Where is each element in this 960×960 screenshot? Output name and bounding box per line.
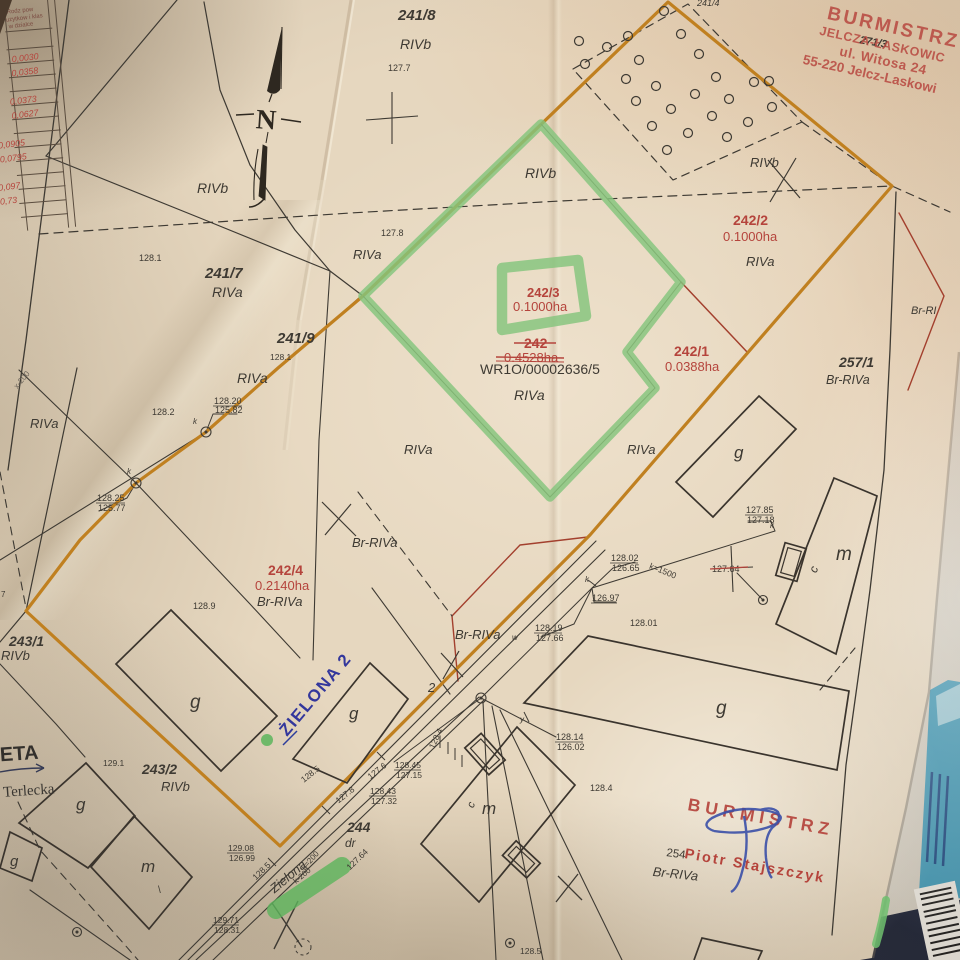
svg-text:128.4: 128.4 bbox=[427, 726, 445, 750]
svg-text:126.65: 126.65 bbox=[612, 563, 640, 573]
svg-text:126.97: 126.97 bbox=[592, 593, 620, 603]
svg-text:c: c bbox=[465, 800, 478, 810]
svg-text:RIVa: RIVa bbox=[30, 416, 58, 431]
svg-text:Br-RIVa: Br-RIVa bbox=[826, 373, 870, 387]
svg-text:Br-RI: Br-RI bbox=[911, 305, 936, 317]
svg-text:244: 244 bbox=[346, 819, 371, 835]
svg-text:RIVa: RIVa bbox=[627, 442, 655, 457]
svg-text:N: N bbox=[255, 104, 277, 136]
svg-text:g: g bbox=[349, 704, 359, 723]
svg-text:129.1: 129.1 bbox=[103, 758, 125, 768]
svg-text:128.25: 128.25 bbox=[97, 493, 125, 503]
svg-text:RIVa: RIVa bbox=[237, 370, 268, 386]
svg-text:0,0358: 0,0358 bbox=[11, 65, 39, 78]
svg-text:257/1: 257/1 bbox=[838, 354, 874, 370]
svg-text:128.02: 128.02 bbox=[611, 553, 639, 563]
svg-text:0.0388ha: 0.0388ha bbox=[665, 359, 720, 374]
svg-text:RIVa: RIVa bbox=[212, 284, 243, 300]
svg-text:128.31: 128.31 bbox=[214, 925, 240, 935]
svg-text:RIVb: RIVb bbox=[161, 779, 190, 794]
svg-text:127.85: 127.85 bbox=[746, 505, 774, 515]
svg-text:128.5: 128.5 bbox=[299, 763, 322, 784]
svg-text:128.5: 128.5 bbox=[520, 946, 542, 956]
svg-text:Piotr Stajszczyk: Piotr Stajszczyk bbox=[683, 846, 826, 886]
svg-text:m: m bbox=[141, 857, 155, 876]
svg-text:Br-RIVa: Br-RIVa bbox=[455, 627, 501, 642]
svg-text:RIVa: RIVa bbox=[746, 254, 774, 269]
svg-text:0.2140ha: 0.2140ha bbox=[255, 578, 310, 593]
svg-text:242/4: 242/4 bbox=[268, 562, 303, 578]
svg-text:\: \ bbox=[158, 885, 161, 896]
svg-text:RIVa: RIVa bbox=[404, 442, 432, 457]
svg-text:128.2: 128.2 bbox=[152, 407, 175, 417]
svg-text:128.19: 128.19 bbox=[535, 623, 563, 633]
svg-text:7: 7 bbox=[1, 590, 6, 599]
svg-text:242/2: 242/2 bbox=[733, 212, 768, 228]
svg-text:241/9: 241/9 bbox=[276, 330, 315, 347]
svg-text:0.1000ha: 0.1000ha bbox=[513, 299, 568, 314]
svg-text:127.64: 127.64 bbox=[344, 846, 370, 871]
svg-text:ETA: ETA bbox=[0, 742, 39, 767]
svg-text:0,0795: 0,0795 bbox=[0, 151, 27, 164]
svg-text:m: m bbox=[836, 544, 852, 565]
svg-text:0,0905: 0,0905 bbox=[0, 137, 26, 150]
svg-text:127.6: 127.6 bbox=[365, 760, 388, 781]
svg-text:RIVb: RIVb bbox=[1, 648, 30, 663]
svg-text:BURMISTRZ: BURMISTRZ bbox=[686, 794, 835, 839]
svg-text:127.32: 127.32 bbox=[371, 796, 397, 806]
svg-text:Br-RIVa: Br-RIVa bbox=[257, 594, 303, 609]
svg-text:2: 2 bbox=[427, 680, 436, 695]
svg-text:0,0373: 0,0373 bbox=[9, 94, 37, 107]
svg-text:128.45: 128.45 bbox=[395, 760, 421, 770]
svg-text:128.14: 128.14 bbox=[556, 732, 584, 742]
svg-text:0.1000ha: 0.1000ha bbox=[723, 229, 778, 244]
svg-text:128.9: 128.9 bbox=[193, 601, 216, 611]
svg-text:k: k bbox=[193, 417, 198, 426]
svg-text:RIVa: RIVa bbox=[353, 247, 381, 262]
svg-text:129.71: 129.71 bbox=[213, 915, 239, 925]
svg-text:g: g bbox=[734, 443, 744, 462]
svg-text:Br-RIVa: Br-RIVa bbox=[352, 535, 398, 550]
svg-text:241/8: 241/8 bbox=[397, 7, 436, 24]
svg-text:RIVb: RIVb bbox=[197, 180, 228, 196]
svg-text:k=1500: k=1500 bbox=[648, 561, 678, 581]
svg-text:RIVb: RIVb bbox=[750, 155, 779, 170]
svg-text:g: g bbox=[190, 692, 201, 713]
svg-text:128.1: 128.1 bbox=[139, 253, 162, 263]
svg-text:128.5: 128.5 bbox=[250, 860, 272, 882]
svg-text:126.99: 126.99 bbox=[229, 853, 255, 863]
svg-text:243/2: 243/2 bbox=[141, 761, 177, 777]
svg-text:127.15: 127.15 bbox=[396, 770, 422, 780]
svg-text:ŻIELONA 2: ŻIELONA 2 bbox=[276, 649, 356, 739]
svg-text:125.77: 125.77 bbox=[98, 503, 126, 513]
svg-text:241/7: 241/7 bbox=[204, 265, 243, 282]
svg-text:y: y bbox=[519, 715, 525, 724]
svg-text:127.66: 127.66 bbox=[536, 633, 564, 643]
svg-text:127.8: 127.8 bbox=[381, 228, 404, 238]
svg-text:k: k bbox=[127, 467, 132, 476]
svg-text:dr: dr bbox=[345, 836, 357, 850]
svg-text:125.82: 125.82 bbox=[215, 405, 243, 415]
svg-text:129.08: 129.08 bbox=[228, 843, 254, 853]
svg-text:242/1: 242/1 bbox=[674, 343, 709, 359]
svg-text:0,0030: 0,0030 bbox=[11, 51, 39, 64]
svg-text:128.1: 128.1 bbox=[270, 352, 292, 362]
svg-text:Br-RIVa: Br-RIVa bbox=[652, 864, 699, 884]
svg-text:242/3: 242/3 bbox=[527, 285, 560, 300]
svg-text:w: w bbox=[512, 633, 519, 642]
svg-text:g: g bbox=[76, 795, 86, 814]
svg-text:k: k bbox=[585, 575, 590, 584]
svg-text:128.43: 128.43 bbox=[370, 786, 396, 796]
svg-text:128.4: 128.4 bbox=[590, 783, 613, 793]
svg-text:0,097: 0,097 bbox=[0, 180, 22, 193]
svg-text:RIVb: RIVb bbox=[400, 36, 431, 52]
svg-text:m: m bbox=[482, 799, 496, 818]
svg-text:0,0627: 0,0627 bbox=[11, 107, 40, 120]
svg-text:0,73: 0,73 bbox=[0, 195, 18, 207]
svg-text:241/4: 241/4 bbox=[696, 0, 720, 8]
svg-text:g: g bbox=[716, 698, 727, 719]
svg-text:c: c bbox=[806, 564, 821, 574]
svg-text:127.7: 127.7 bbox=[388, 63, 411, 73]
svg-text:128.01: 128.01 bbox=[630, 618, 658, 628]
svg-text:g: g bbox=[10, 853, 19, 870]
svg-text:243/1: 243/1 bbox=[8, 633, 44, 649]
svg-text:RIVb: RIVb bbox=[525, 165, 556, 181]
svg-text:RIVa: RIVa bbox=[514, 387, 545, 403]
svg-text:126.02: 126.02 bbox=[557, 742, 585, 752]
